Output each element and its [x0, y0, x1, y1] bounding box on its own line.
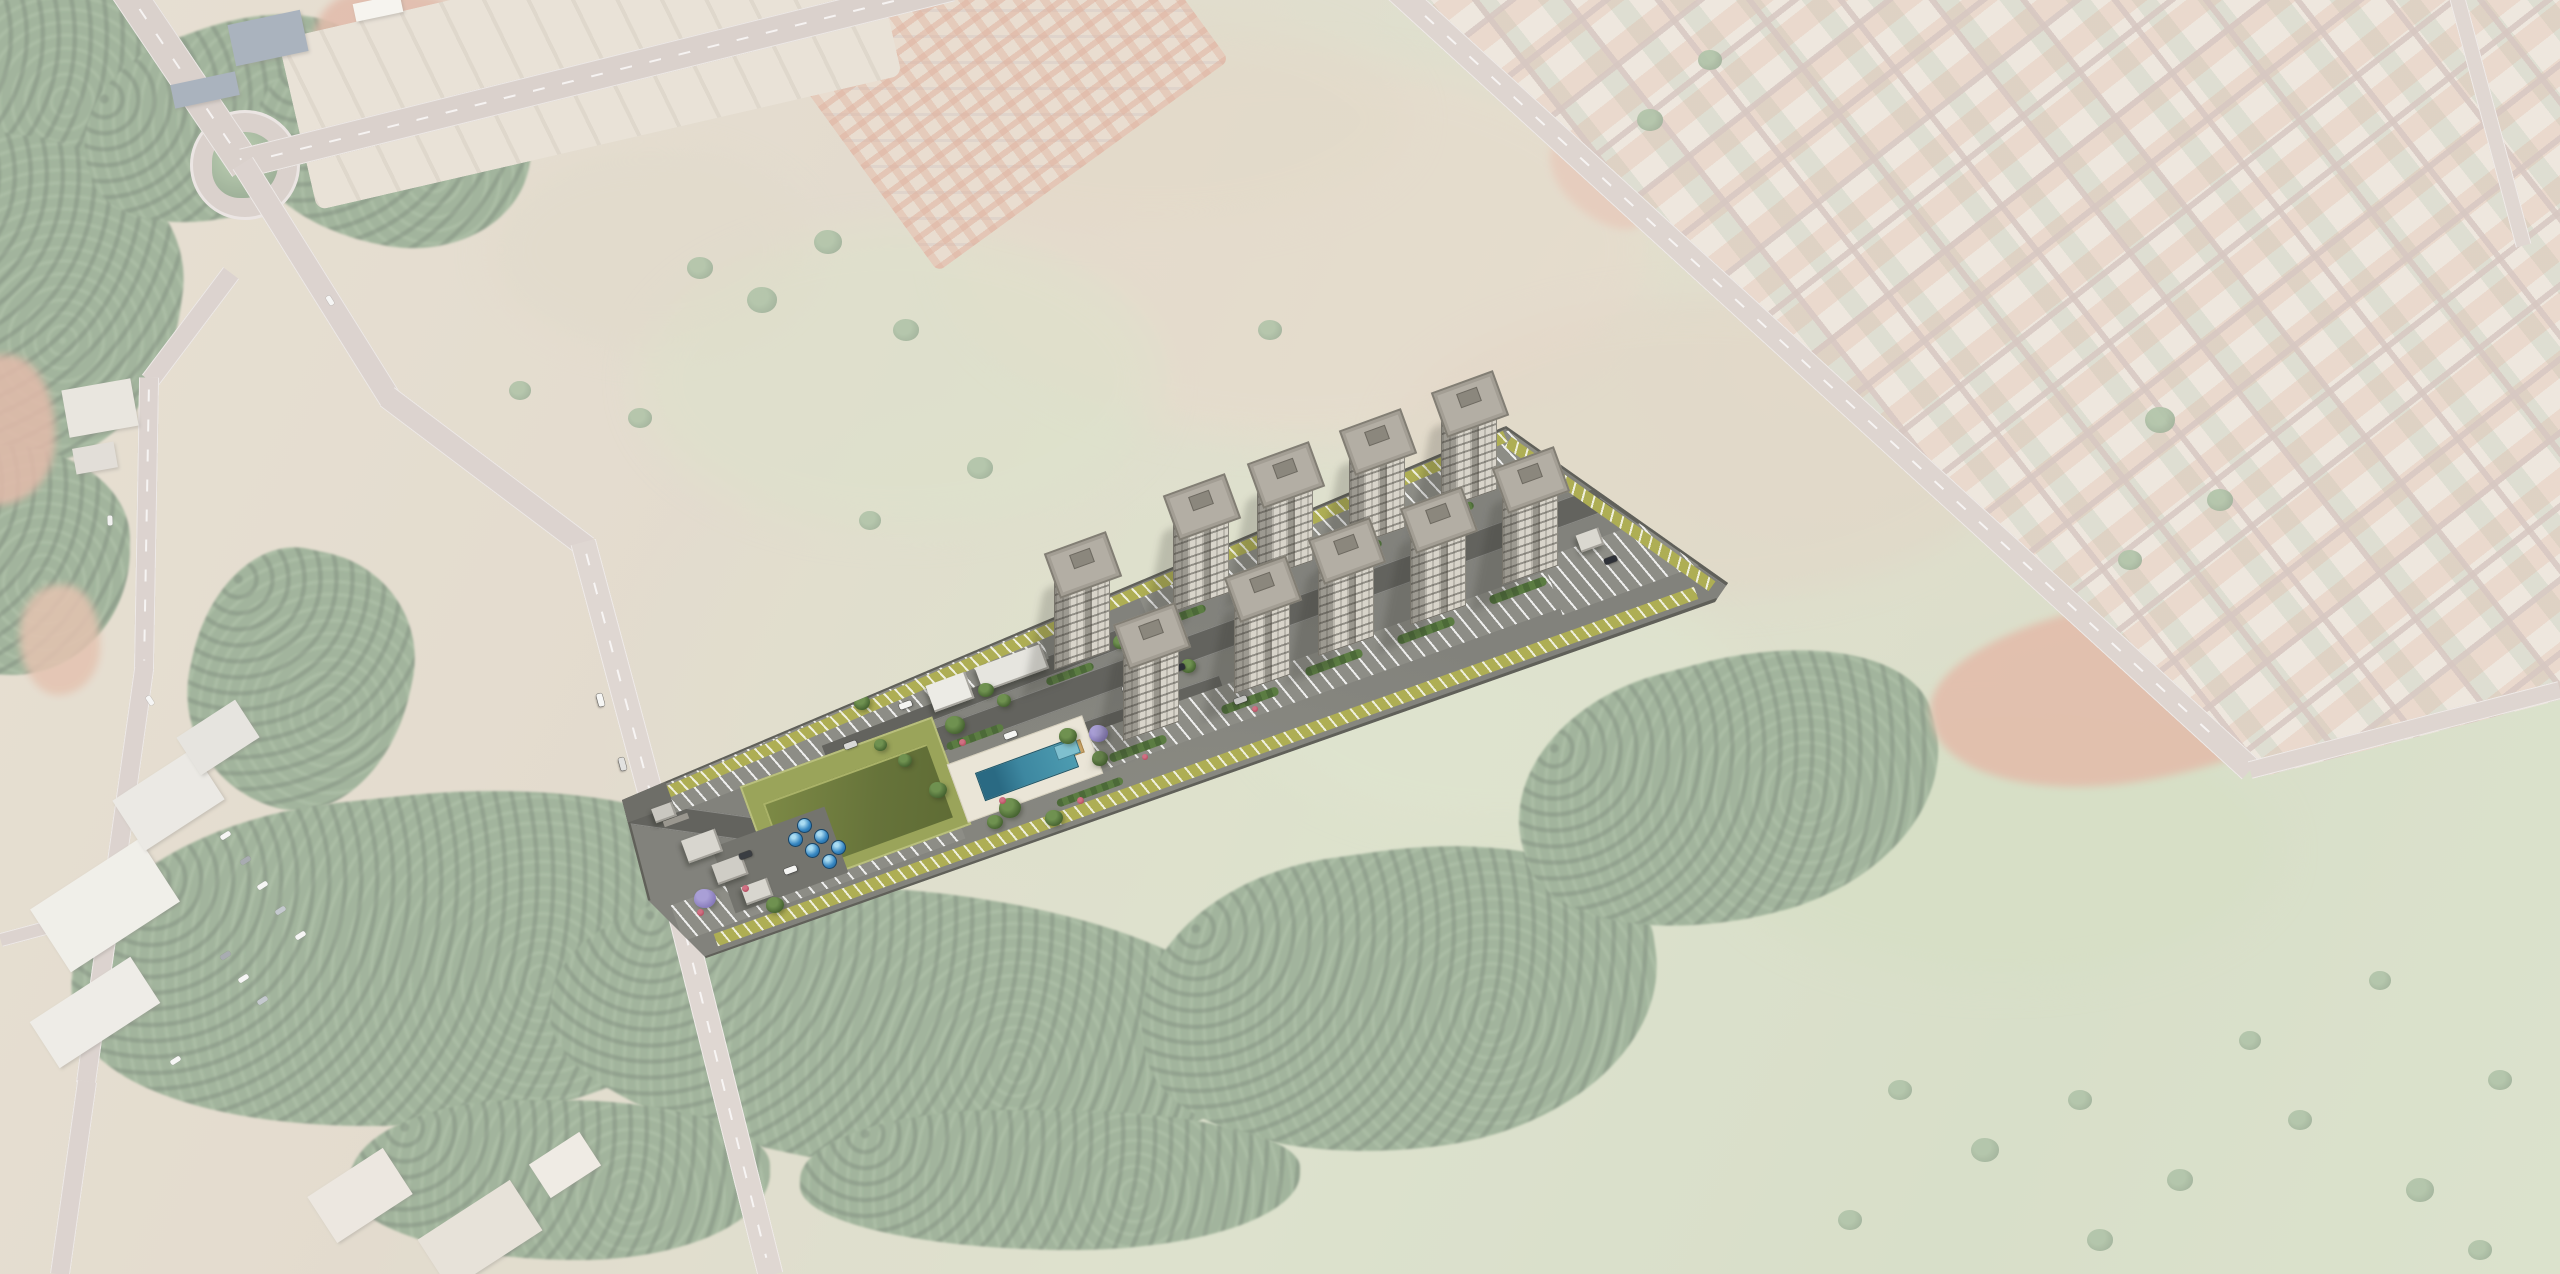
flower-bush — [742, 885, 749, 892]
flower-bush — [697, 909, 704, 916]
landscape-tree — [1059, 728, 1077, 744]
water-tank — [822, 854, 837, 869]
landscape-tree — [945, 716, 965, 734]
landscape-tree — [898, 754, 912, 767]
apartment-tower — [1227, 563, 1295, 713]
landscape-tree — [929, 782, 947, 798]
water-tank — [797, 818, 812, 833]
apartment-tower — [1116, 610, 1184, 760]
aerial-scene — [0, 0, 2560, 1274]
water-tank — [788, 832, 803, 847]
flower-bush — [999, 797, 1006, 804]
landscape-tree — [874, 739, 887, 751]
flower-bush — [959, 739, 966, 746]
apartment-tower — [1311, 525, 1379, 675]
apartment-tower — [1047, 539, 1115, 689]
water-tank — [814, 829, 829, 844]
apartment-tower — [1495, 454, 1563, 604]
flower-bush — [1077, 797, 1084, 804]
landscape-tree — [1045, 810, 1063, 826]
landscape-tree — [694, 889, 716, 908]
landscape-tree — [987, 815, 1003, 829]
landscape-tree — [978, 683, 994, 697]
landscape-tree — [766, 897, 784, 913]
apartment-tower — [1403, 494, 1471, 644]
water-tank — [805, 843, 820, 858]
water-tank — [831, 840, 846, 855]
landscape-tree — [997, 694, 1011, 707]
